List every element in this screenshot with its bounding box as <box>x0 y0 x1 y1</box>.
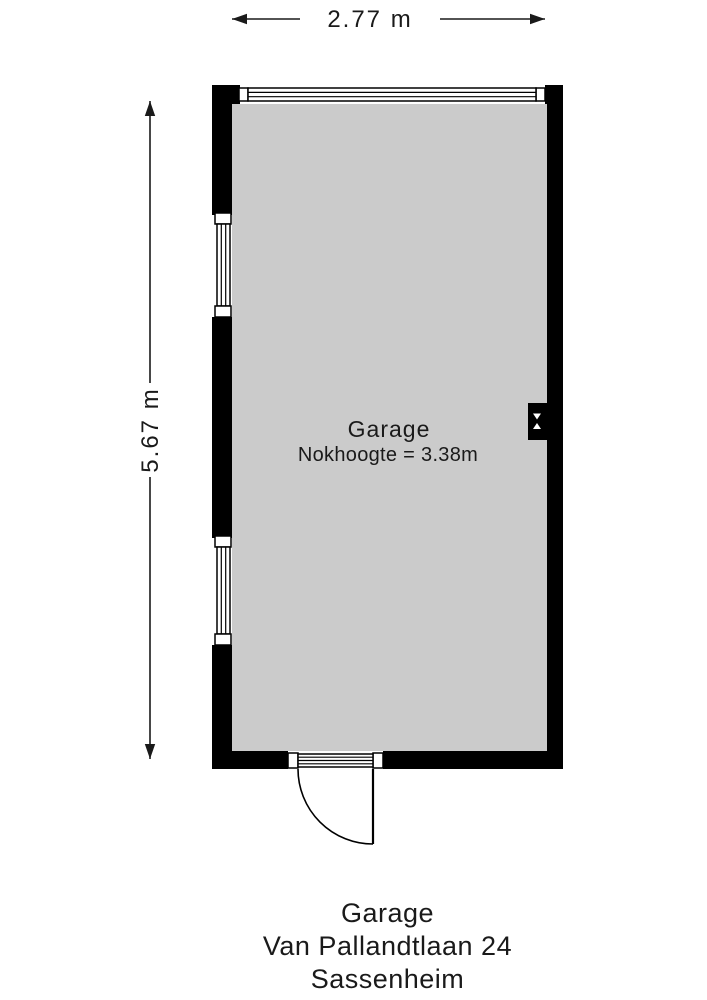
width-dimension-label: 2.77 m <box>327 6 412 33</box>
window-left-upper <box>215 213 231 317</box>
wall-left-lower <box>212 645 232 751</box>
width-dimension: 2.77 m <box>232 6 545 33</box>
caption-block: Garage Van Pallandtlaan 24 Sassenheim <box>0 897 707 996</box>
vertical-dimension-arrow-icon <box>145 744 155 759</box>
horizontal-dimension-arrow-icon <box>530 14 545 24</box>
door-jamb-right <box>373 753 383 768</box>
door-jamb-left <box>288 753 298 768</box>
floorplan-page: 2.77 m 5.67 m <box>0 0 707 1000</box>
wall-fixture-niche <box>528 403 547 440</box>
room-name-label: Garage <box>348 416 431 442</box>
wall-left-middle <box>212 317 232 538</box>
caption-address: Van Pallandtlaan 24 <box>0 930 707 963</box>
height-dimension-label: 5.67 m <box>137 387 164 472</box>
wall-bottom-right <box>383 751 563 769</box>
wall-left-upper <box>212 85 232 215</box>
window-cap <box>215 213 231 224</box>
wall-bottom-left <box>212 751 288 769</box>
window-top-cap-left <box>239 88 248 101</box>
window-cap <box>215 306 231 317</box>
height-dimension: 5.67 m <box>137 101 164 759</box>
wall-right <box>547 85 563 769</box>
window-frame <box>217 547 230 634</box>
caption-room-title: Garage <box>0 897 707 930</box>
window-left-lower <box>215 536 231 645</box>
door-swing-arc <box>298 769 373 844</box>
vertical-dimension-arrow-icon <box>145 101 155 116</box>
window-cap <box>215 536 231 547</box>
ridge-height-label: Nokhoogte = 3.38m <box>298 444 478 466</box>
floorplan-drawing: 2.77 m 5.67 m <box>0 0 707 1000</box>
window-top-frame <box>248 88 536 101</box>
window-glazing-icon <box>239 88 545 101</box>
caption-city: Sassenheim <box>0 963 707 996</box>
window-frame <box>217 224 230 306</box>
window-top-cap-right <box>536 88 545 101</box>
door-swing-icon <box>288 753 383 844</box>
window-cap <box>215 634 231 645</box>
horizontal-dimension-arrow-icon <box>232 14 247 24</box>
